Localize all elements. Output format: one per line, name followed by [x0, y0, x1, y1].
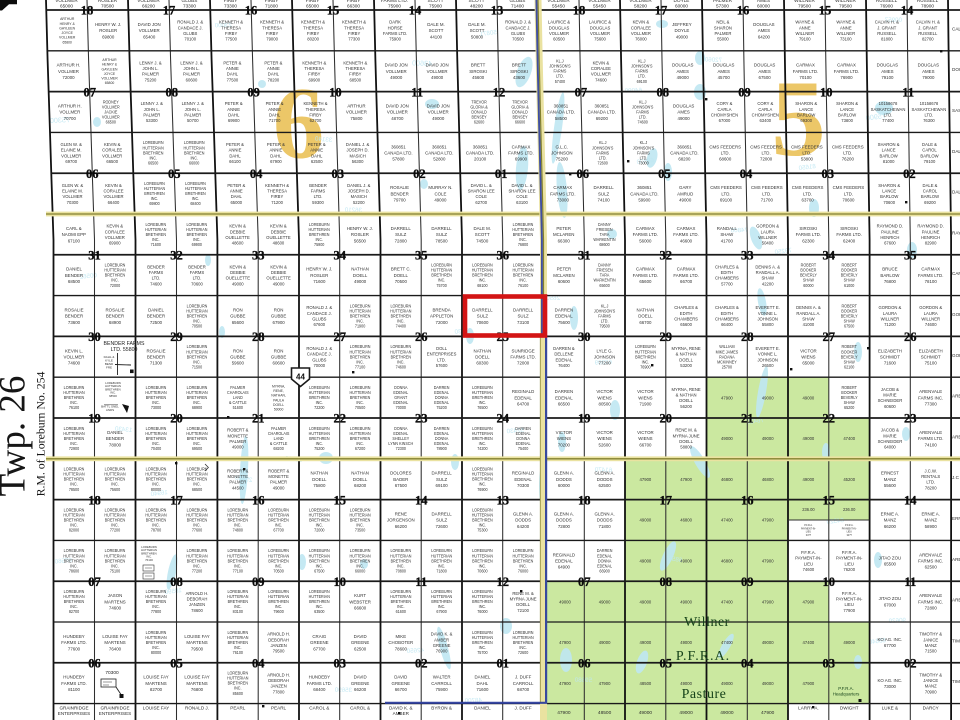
svg-text:03: 03: [332, 167, 345, 181]
svg-text:16: 16: [245, 4, 258, 18]
svg-text:14: 14: [901, 4, 914, 18]
svg-text:49000: 49000: [680, 558, 692, 563]
svg-text:RONALD J.: RONALD J.: [185, 706, 209, 711]
svg-text:18: 18: [88, 493, 101, 507]
svg-text:09: 09: [741, 575, 754, 589]
svg-text:33: 33: [741, 249, 754, 263]
svg-text:33: 33: [252, 249, 265, 263]
svg-text:ARE: ARE: [952, 598, 960, 603]
svg-text:07: 07: [88, 575, 101, 589]
svg-text:05: 05: [168, 167, 181, 181]
svg-text:49000: 49000: [599, 599, 611, 604]
svg-text:DOU: DOU: [952, 67, 960, 72]
svg-text:20: 20: [170, 412, 183, 426]
svg-text:GLUBS71400: GLUBS71400: [510, 0, 526, 9]
svg-text:47400: 47400: [721, 599, 733, 604]
svg-text:31: 31: [88, 249, 101, 263]
svg-text:46800: 46800: [762, 477, 774, 482]
svg-text:14: 14: [409, 4, 422, 18]
svg-text:28: 28: [741, 330, 754, 344]
svg-text:16: 16: [741, 493, 754, 507]
svg-text:29: 29: [170, 330, 183, 344]
svg-text:44: 44: [296, 373, 305, 382]
svg-text:09: 09: [738, 85, 751, 99]
svg-text:47900: 47900: [559, 640, 571, 645]
svg-text:49000: 49000: [640, 640, 652, 645]
svg-text:08: 08: [170, 575, 183, 589]
svg-text:17: 17: [163, 4, 176, 18]
svg-text:49000: 49000: [680, 681, 692, 686]
svg-text:FIRBY71800: FIRBY71800: [265, 0, 280, 9]
svg-text:70300: 70300: [105, 670, 119, 676]
svg-text:02: 02: [903, 167, 916, 181]
svg-text:DAL: DAL: [952, 190, 960, 195]
svg-text:47900: 47900: [761, 710, 775, 716]
svg-text:08: 08: [165, 85, 178, 99]
svg-text:08: 08: [660, 575, 673, 589]
svg-text:49000: 49000: [559, 599, 571, 604]
svg-text:49000: 49000: [803, 436, 815, 441]
svg-text:26: 26: [415, 330, 428, 344]
svg-text:06: 06: [578, 657, 591, 671]
svg-text:49000: 49000: [762, 436, 774, 441]
svg-text:49000: 49000: [762, 681, 774, 686]
svg-text:236.00: 236.00: [843, 507, 856, 512]
svg-text:11: 11: [902, 85, 914, 99]
svg-text:10: 10: [329, 85, 342, 99]
svg-text:05: 05: [658, 167, 671, 181]
svg-text:47400: 47400: [803, 640, 815, 645]
svg-text:26: 26: [904, 330, 917, 344]
svg-text:03: 03: [823, 657, 836, 671]
svg-text:47900: 47900: [721, 395, 733, 400]
svg-text:46800: 46800: [721, 558, 733, 563]
svg-text:5: 5: [771, 58, 826, 179]
svg-text:01: 01: [495, 167, 508, 181]
svg-text:J. DUFF: J. DUFF: [515, 706, 532, 711]
svg-text:90620: 90620: [888, 617, 906, 625]
svg-text:45200: 45200: [843, 477, 855, 482]
svg-text:15: 15: [333, 493, 346, 507]
svg-text:34: 34: [823, 249, 836, 263]
svg-text:06: 06: [86, 167, 99, 181]
svg-text:21: 21: [741, 412, 754, 426]
svg-text:29: 29: [660, 330, 673, 344]
svg-text:35: 35: [415, 249, 428, 263]
svg-text:17: 17: [655, 4, 668, 18]
svg-text:DARCY: DARCY: [923, 706, 939, 711]
svg-text:46800: 46800: [721, 477, 733, 482]
svg-text:49000: 49000: [762, 640, 774, 645]
svg-text:08: 08: [656, 85, 669, 99]
svg-text:49000: 49000: [640, 558, 652, 563]
svg-text:14: 14: [904, 493, 917, 507]
svg-text:03: 03: [821, 167, 834, 181]
svg-text:GRAINRIDGEENTERPRISES: GRAINRIDGEENTERPRISES: [99, 706, 131, 716]
svg-text:07: 07: [575, 85, 588, 99]
svg-text:30: 30: [88, 330, 101, 344]
svg-text:23: 23: [904, 412, 917, 426]
svg-text:35690: 35690: [334, 687, 352, 694]
svg-text:04: 04: [250, 167, 263, 181]
svg-text:18: 18: [573, 4, 586, 18]
svg-text:PEARL: PEARL: [230, 706, 246, 711]
svg-text:FIRBY73300: FIRBY73300: [224, 0, 239, 9]
svg-text:10: 10: [823, 575, 836, 589]
svg-text:02: 02: [415, 657, 428, 671]
svg-text:47900: 47900: [680, 477, 692, 482]
svg-text:09: 09: [247, 85, 260, 99]
svg-text:47900: 47900: [803, 599, 815, 604]
svg-text:P.F.R.A.: P.F.R.A.: [676, 649, 730, 664]
svg-text:36: 36: [496, 249, 509, 263]
svg-text:SAS: SAS: [952, 108, 960, 113]
svg-text:59680: 59680: [574, 677, 592, 684]
svg-text:12: 12: [493, 85, 506, 99]
svg-text:GRAINRIDGEENTERPRISES: GRAINRIDGEENTERPRISES: [58, 706, 90, 716]
svg-text:49000: 49000: [679, 710, 693, 716]
svg-text:CAROL &: CAROL &: [309, 706, 329, 711]
svg-text:19: 19: [578, 412, 591, 426]
svg-text:32: 32: [170, 249, 183, 263]
svg-text:47900: 47900: [640, 477, 652, 482]
svg-text:47900: 47900: [803, 681, 815, 686]
svg-text:18: 18: [81, 4, 94, 18]
svg-text:DWIGHT: DWIGHT: [840, 706, 859, 711]
svg-text:23: 23: [415, 412, 428, 426]
svg-text:04: 04: [741, 657, 754, 671]
svg-text:CAROL &: CAROL &: [350, 706, 370, 711]
svg-text:15: 15: [819, 4, 832, 18]
svg-text:LARRY A.: LARRY A.: [798, 706, 819, 711]
svg-text:13: 13: [496, 493, 509, 507]
svg-text:49000: 49000: [843, 640, 855, 645]
svg-text:49000: 49000: [680, 640, 692, 645]
svg-text:49000: 49000: [640, 517, 652, 522]
svg-text:LTD. 55800: LTD. 55800: [111, 347, 138, 353]
svg-text:ANDS: ANDS: [106, 408, 114, 412]
svg-text:49000: 49000: [803, 477, 815, 482]
svg-text:11: 11: [904, 575, 916, 589]
svg-text:P.F.R.A.: P.F.R.A.: [838, 686, 854, 691]
svg-text:Pasture: Pasture: [682, 687, 727, 702]
svg-text:ARE: ARE: [952, 434, 960, 439]
svg-text:CAR: CAR: [952, 271, 960, 276]
svg-text:15: 15: [327, 4, 340, 18]
svg-text:DOYLE60000: DOYLE60000: [674, 0, 690, 9]
svg-text:13: 13: [491, 4, 504, 18]
svg-text:07: 07: [83, 85, 96, 99]
svg-text:ARE: ARE: [952, 557, 960, 562]
svg-text:LUKE &: LUKE &: [882, 706, 898, 711]
svg-text:06: 06: [576, 167, 589, 181]
svg-text:04: 04: [252, 657, 265, 671]
svg-text:28: 28: [252, 330, 265, 344]
svg-text:Headquarters: Headquarters: [833, 692, 860, 697]
svg-text:20: 20: [660, 412, 673, 426]
svg-text:Willner: Willner: [684, 615, 730, 630]
svg-text:19: 19: [88, 412, 101, 426]
svg-text:06: 06: [88, 657, 101, 671]
svg-text:47900: 47900: [762, 558, 774, 563]
svg-text:47400: 47400: [721, 640, 733, 645]
svg-text:47900: 47900: [762, 517, 774, 522]
svg-text:TIM: TIM: [952, 679, 960, 684]
svg-text:49000: 49000: [803, 395, 815, 400]
svg-text:05: 05: [170, 657, 183, 671]
svg-text:47400: 47400: [843, 436, 855, 441]
svg-text:46800: 46800: [680, 517, 692, 522]
svg-text:18: 18: [578, 493, 591, 507]
svg-text:PEARL: PEARL: [271, 706, 287, 711]
svg-text:30: 30: [578, 330, 591, 344]
svg-text:47900: 47900: [599, 681, 611, 686]
svg-text:31: 31: [578, 249, 591, 263]
svg-text:02: 02: [413, 167, 426, 181]
svg-text:CAL: CAL: [952, 26, 960, 31]
svg-text:DAL: DAL: [952, 149, 960, 154]
svg-text:BYRON &: BYRON &: [431, 706, 452, 711]
svg-text:10: 10: [333, 575, 346, 589]
svg-text:J.C: J.C: [952, 475, 960, 480]
svg-text:ARE: ARE: [952, 394, 960, 399]
svg-text:AMES60000: AMES60000: [757, 0, 771, 9]
svg-text:32: 32: [660, 249, 673, 263]
svg-text:TIM: TIM: [952, 638, 960, 643]
svg-text:47400: 47400: [721, 517, 733, 522]
svg-text:11: 11: [415, 575, 427, 589]
svg-text:22: 22: [333, 412, 346, 426]
svg-text:DANIEL: DANIEL: [474, 706, 491, 711]
svg-text:01: 01: [496, 657, 509, 671]
svg-text:17: 17: [660, 493, 673, 507]
svg-text:47900: 47900: [557, 710, 571, 716]
svg-text:236.00: 236.00: [802, 507, 815, 512]
svg-text:48500: 48500: [640, 681, 652, 686]
svg-text:FIRBY65000: FIRBY65000: [306, 0, 321, 9]
svg-text:SCOTT75900: SCOTT75900: [428, 0, 444, 9]
svg-text:49000: 49000: [721, 681, 733, 686]
svg-text:DANIELDAHL71600: DANIELDAHL71600: [474, 674, 490, 692]
svg-text:24: 24: [496, 412, 509, 426]
svg-text:SCOTT48200: SCOTT48200: [469, 0, 485, 9]
svg-text:22: 22: [823, 412, 836, 426]
svg-text:Twp. 26: Twp. 26: [0, 376, 34, 497]
svg-text:14: 14: [415, 493, 428, 507]
svg-text:11: 11: [411, 85, 423, 99]
svg-text:27: 27: [823, 330, 836, 344]
svg-text:47900: 47900: [762, 599, 774, 604]
svg-text:10: 10: [820, 85, 833, 99]
svg-text:16: 16: [252, 493, 265, 507]
svg-text:49000: 49000: [639, 710, 653, 716]
svg-text:FIRBY66300: FIRBY66300: [347, 0, 362, 9]
svg-text:FRE: FRE: [106, 366, 112, 370]
svg-text:16: 16: [737, 4, 750, 18]
svg-text:07: 07: [578, 575, 591, 589]
svg-text:17: 17: [170, 493, 183, 507]
svg-text:05: 05: [660, 657, 673, 671]
svg-text:12: 12: [496, 575, 509, 589]
svg-text:09: 09: [252, 575, 265, 589]
svg-text:49000: 49000: [762, 395, 774, 400]
svg-text:GOR: GOR: [952, 312, 960, 317]
svg-text:R.M. of Loreburn No. 254: R.M. of Loreburn No. 254: [34, 371, 48, 496]
svg-text:02: 02: [904, 657, 917, 671]
svg-text:49000: 49000: [640, 599, 652, 604]
svg-text:04: 04: [740, 167, 753, 181]
svg-text:GLUBS73300: GLUBS73300: [182, 0, 198, 9]
svg-text:03: 03: [333, 657, 346, 671]
svg-text:15: 15: [823, 493, 836, 507]
svg-text:34: 34: [333, 249, 346, 263]
svg-text:48500: 48500: [598, 710, 612, 716]
svg-text:49000: 49000: [720, 710, 734, 716]
svg-text:ERN: ERN: [952, 516, 960, 521]
svg-text:47900: 47900: [559, 681, 571, 686]
svg-text:27: 27: [333, 330, 346, 344]
svg-text:49000: 49000: [721, 436, 733, 441]
svg-text:35: 35: [904, 249, 917, 263]
svg-text:GOR: GOR: [952, 353, 960, 358]
svg-text:49000: 49000: [599, 640, 611, 645]
svg-text:21: 21: [252, 412, 265, 426]
svg-text:RAY: RAY: [952, 230, 960, 235]
svg-text:LOUISE FAY: LOUISE FAY: [143, 706, 169, 711]
svg-text:49000: 49000: [680, 599, 692, 604]
